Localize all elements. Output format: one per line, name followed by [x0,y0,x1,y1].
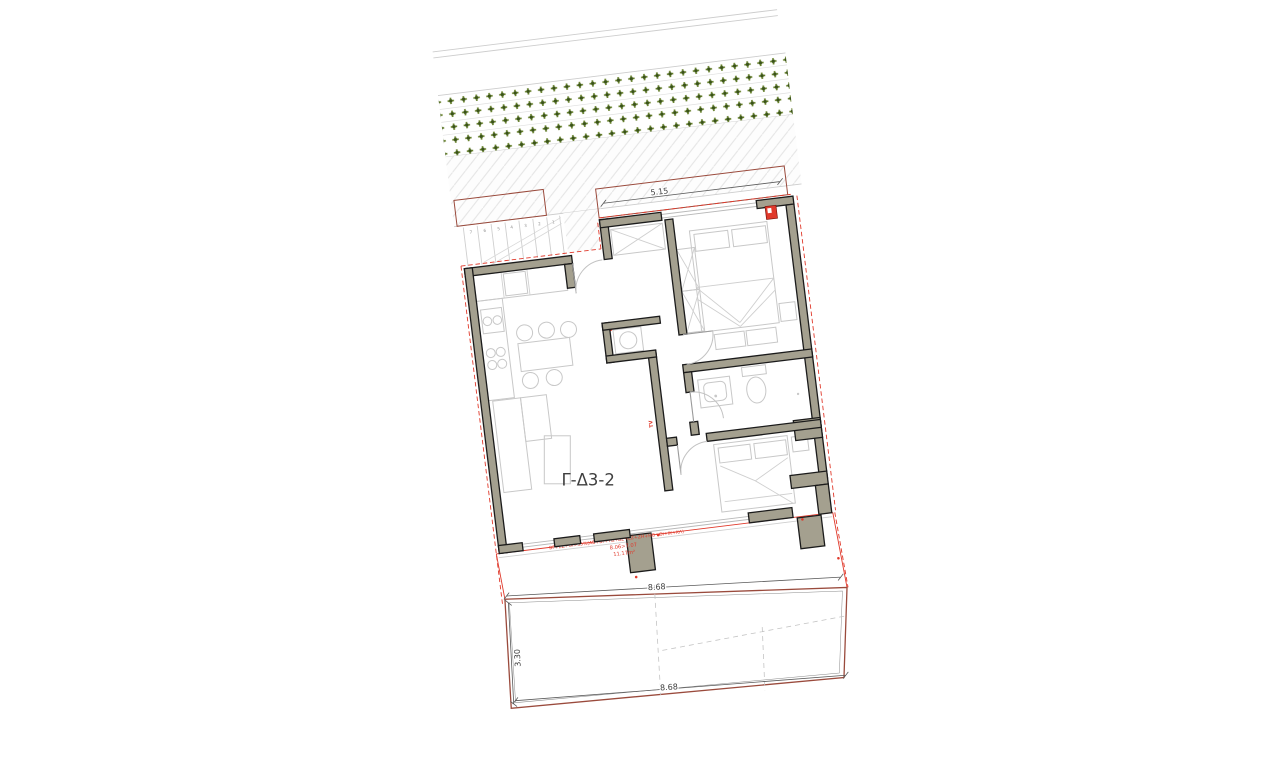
toilet-bowl [745,376,767,404]
stove-burner [497,359,507,369]
dining-table [518,337,573,371]
sink-bowl [493,315,503,325]
stair-step-number: 3 [524,223,528,228]
nightstand [779,302,797,322]
balcony-column-right [797,515,825,549]
dining-chair [516,324,534,342]
sofa-chaise [520,395,551,442]
washing-machine-drum [619,331,638,350]
bedroom1-door-swing [683,331,716,364]
toilet-tank [741,365,766,377]
dining-chair [545,369,563,387]
wall-southeast-corner [815,484,831,514]
floor-drain [797,393,800,396]
floor-plan: 1 2 3 4 5 6 7 5.15 ΒΓ+ΕΖ+ΘΙ>35%(ΑΒ+ΒΓ+ΓΔ… [0,0,1280,768]
washing-machine [613,327,644,354]
wall-west [464,268,507,554]
balcony-slab [496,512,847,629]
wall-bath-south-stub [667,437,678,446]
garden-lower-dim-label: 8.68 [660,682,678,692]
dining-chair [560,321,578,339]
stove-burner [486,348,496,358]
garden-lower-dim-line [512,657,849,719]
dining-chair [522,372,540,390]
rainwater-pipe-notch [767,208,772,213]
stair-step-number: 2 [538,221,542,226]
entrance-door-swing [572,260,605,293]
sink-bowl [483,316,493,326]
dining-chair [538,321,556,339]
kitchen [473,264,580,400]
stove-burner [496,347,506,357]
garden-upper-dim-label: 8.68 [648,582,666,592]
tv-label: TV [648,420,655,428]
wall-north-pier-left [599,212,662,227]
wall-bath-west-stub [684,372,694,393]
stair-step-number: 7 [469,229,473,234]
bathroom-sink-basin [703,381,727,403]
fridge [503,271,528,296]
wall-bedroom1-bath-divider [683,349,813,373]
bathroom-door-leaf [690,392,694,422]
kitchen-sink [480,307,504,333]
hall-closet [611,223,666,255]
balcony: ΒΓ+ΕΖ+ΘΙ>35%(ΑΒ+ΒΓ+ΓΔ+ΔΕ+ΕΖ+ΖΗ+ΗΘ+ΘΙ+ΙΚ+… [493,487,847,629]
bed-1-bench [714,331,746,350]
bedroom-2 [714,433,816,512]
stair-step-number: 4 [510,224,514,229]
stove-burner [487,360,497,370]
closet-cross-lines [611,223,666,255]
bed-1-bench [746,327,778,346]
wall-top-left [464,256,572,277]
window-bedroom-1 [661,203,757,218]
road-edge-lines [433,10,778,58]
floor-plan-canvas: 1 2 3 4 5 6 7 5.15 ΒΓ+ΕΖ+ΘΙ>35%(ΑΒ+ΒΓ+ΓΔ… [0,0,1280,768]
apartment-id-label: Γ-Δ3-2 [561,470,614,489]
stair-step-number: 6 [483,228,487,233]
stair-step-number: 1 [552,219,556,224]
dining-area [516,319,583,390]
entry-paving-patch [563,209,606,253]
wall-bedroom1-west [665,219,687,335]
stair-step-number: 5 [497,226,501,231]
sink-drain [714,394,717,397]
bathroom-door-swing [690,388,723,421]
garden-depth-dim-label: 3.30 [513,649,523,667]
wall-bath-west-stub [690,421,700,435]
bathroom-sink [698,376,733,408]
bedroom2-door-swing [677,441,710,474]
